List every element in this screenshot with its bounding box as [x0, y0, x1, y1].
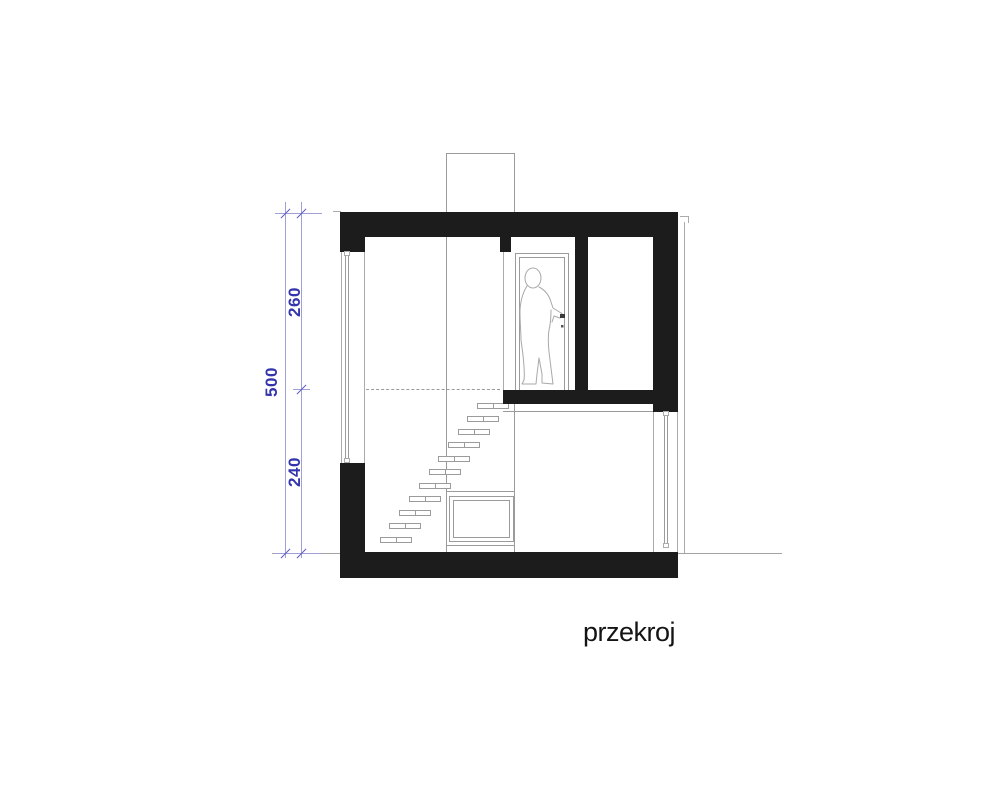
stair-tread [458, 429, 490, 435]
door-head-stub [500, 237, 511, 252]
door-handle-dot [561, 325, 564, 328]
right-wall [653, 212, 678, 412]
mid-level-dashed-line [366, 389, 500, 390]
left-window-tick-bottom [344, 458, 350, 463]
interior-partition [575, 237, 588, 390]
ceiling-line [503, 411, 653, 412]
roof-drip-hook-vert [688, 216, 689, 223]
chimney-flue-line-left [446, 237, 447, 552]
figure-head [525, 268, 541, 288]
dimension-label-lower: 240 [285, 457, 305, 487]
right-window-glazing [664, 413, 668, 547]
stair-tread [429, 469, 461, 475]
left-wall-upper [340, 212, 365, 252]
dimension-label-upper: 260 [285, 287, 305, 317]
left-window-tick-top [344, 251, 350, 256]
dimension-label-total: 500 [262, 367, 282, 397]
stair-tread [380, 537, 412, 543]
right-window-tick-bottom [663, 543, 669, 548]
stair-tread [467, 416, 499, 422]
dimension-line-segments [301, 202, 302, 558]
fireplace-top-line [446, 491, 515, 492]
right-window-tick-top [663, 411, 669, 416]
stair-tread [399, 510, 431, 516]
mid-floor-slab [503, 390, 654, 404]
stair-tread [448, 442, 480, 448]
left-wall-exterior-face [341, 252, 342, 463]
right-wall-interior-face [653, 412, 654, 552]
fireplace-inner [453, 500, 510, 538]
roof-slab [340, 212, 678, 237]
stair-tread [419, 483, 451, 489]
left-wall-interior-face [364, 252, 365, 463]
fireplace-bottom-line [446, 545, 515, 546]
stair-tread [409, 496, 441, 502]
stair-tread [389, 523, 421, 529]
dimension-line-total [285, 202, 286, 558]
section-drawing-sheet: 260 500 240 przekroj [0, 0, 1000, 800]
facade-reference-line-right [684, 222, 685, 553]
figure-body [520, 286, 553, 384]
floor-slab [340, 552, 678, 578]
stair-tread [438, 456, 470, 462]
human-figure [510, 262, 570, 390]
left-window-glazing [345, 254, 349, 461]
chimney-flue-line-right [514, 404, 515, 552]
chimney [446, 153, 515, 213]
partition-edge-line [503, 252, 504, 390]
drawing-title: przekroj [583, 617, 675, 648]
right-wall-exterior-face [677, 412, 678, 552]
door-handle [560, 314, 565, 318]
